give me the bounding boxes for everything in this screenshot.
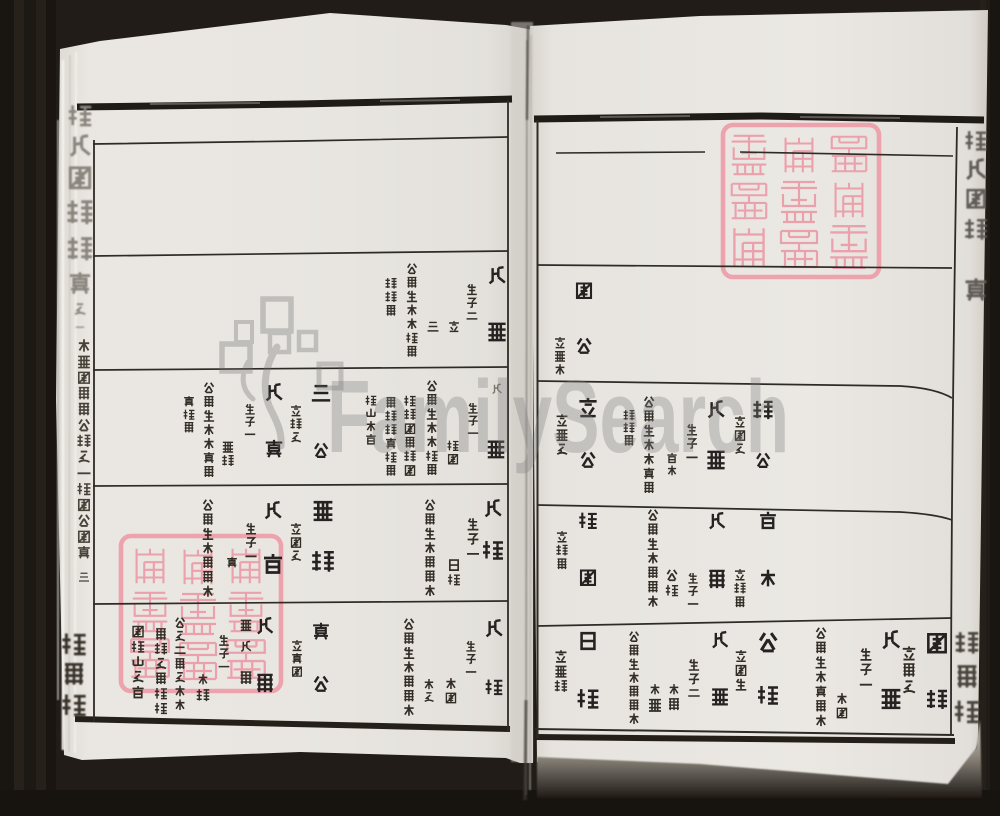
svg-text:FamilySearch: FamilySearch	[327, 359, 789, 474]
